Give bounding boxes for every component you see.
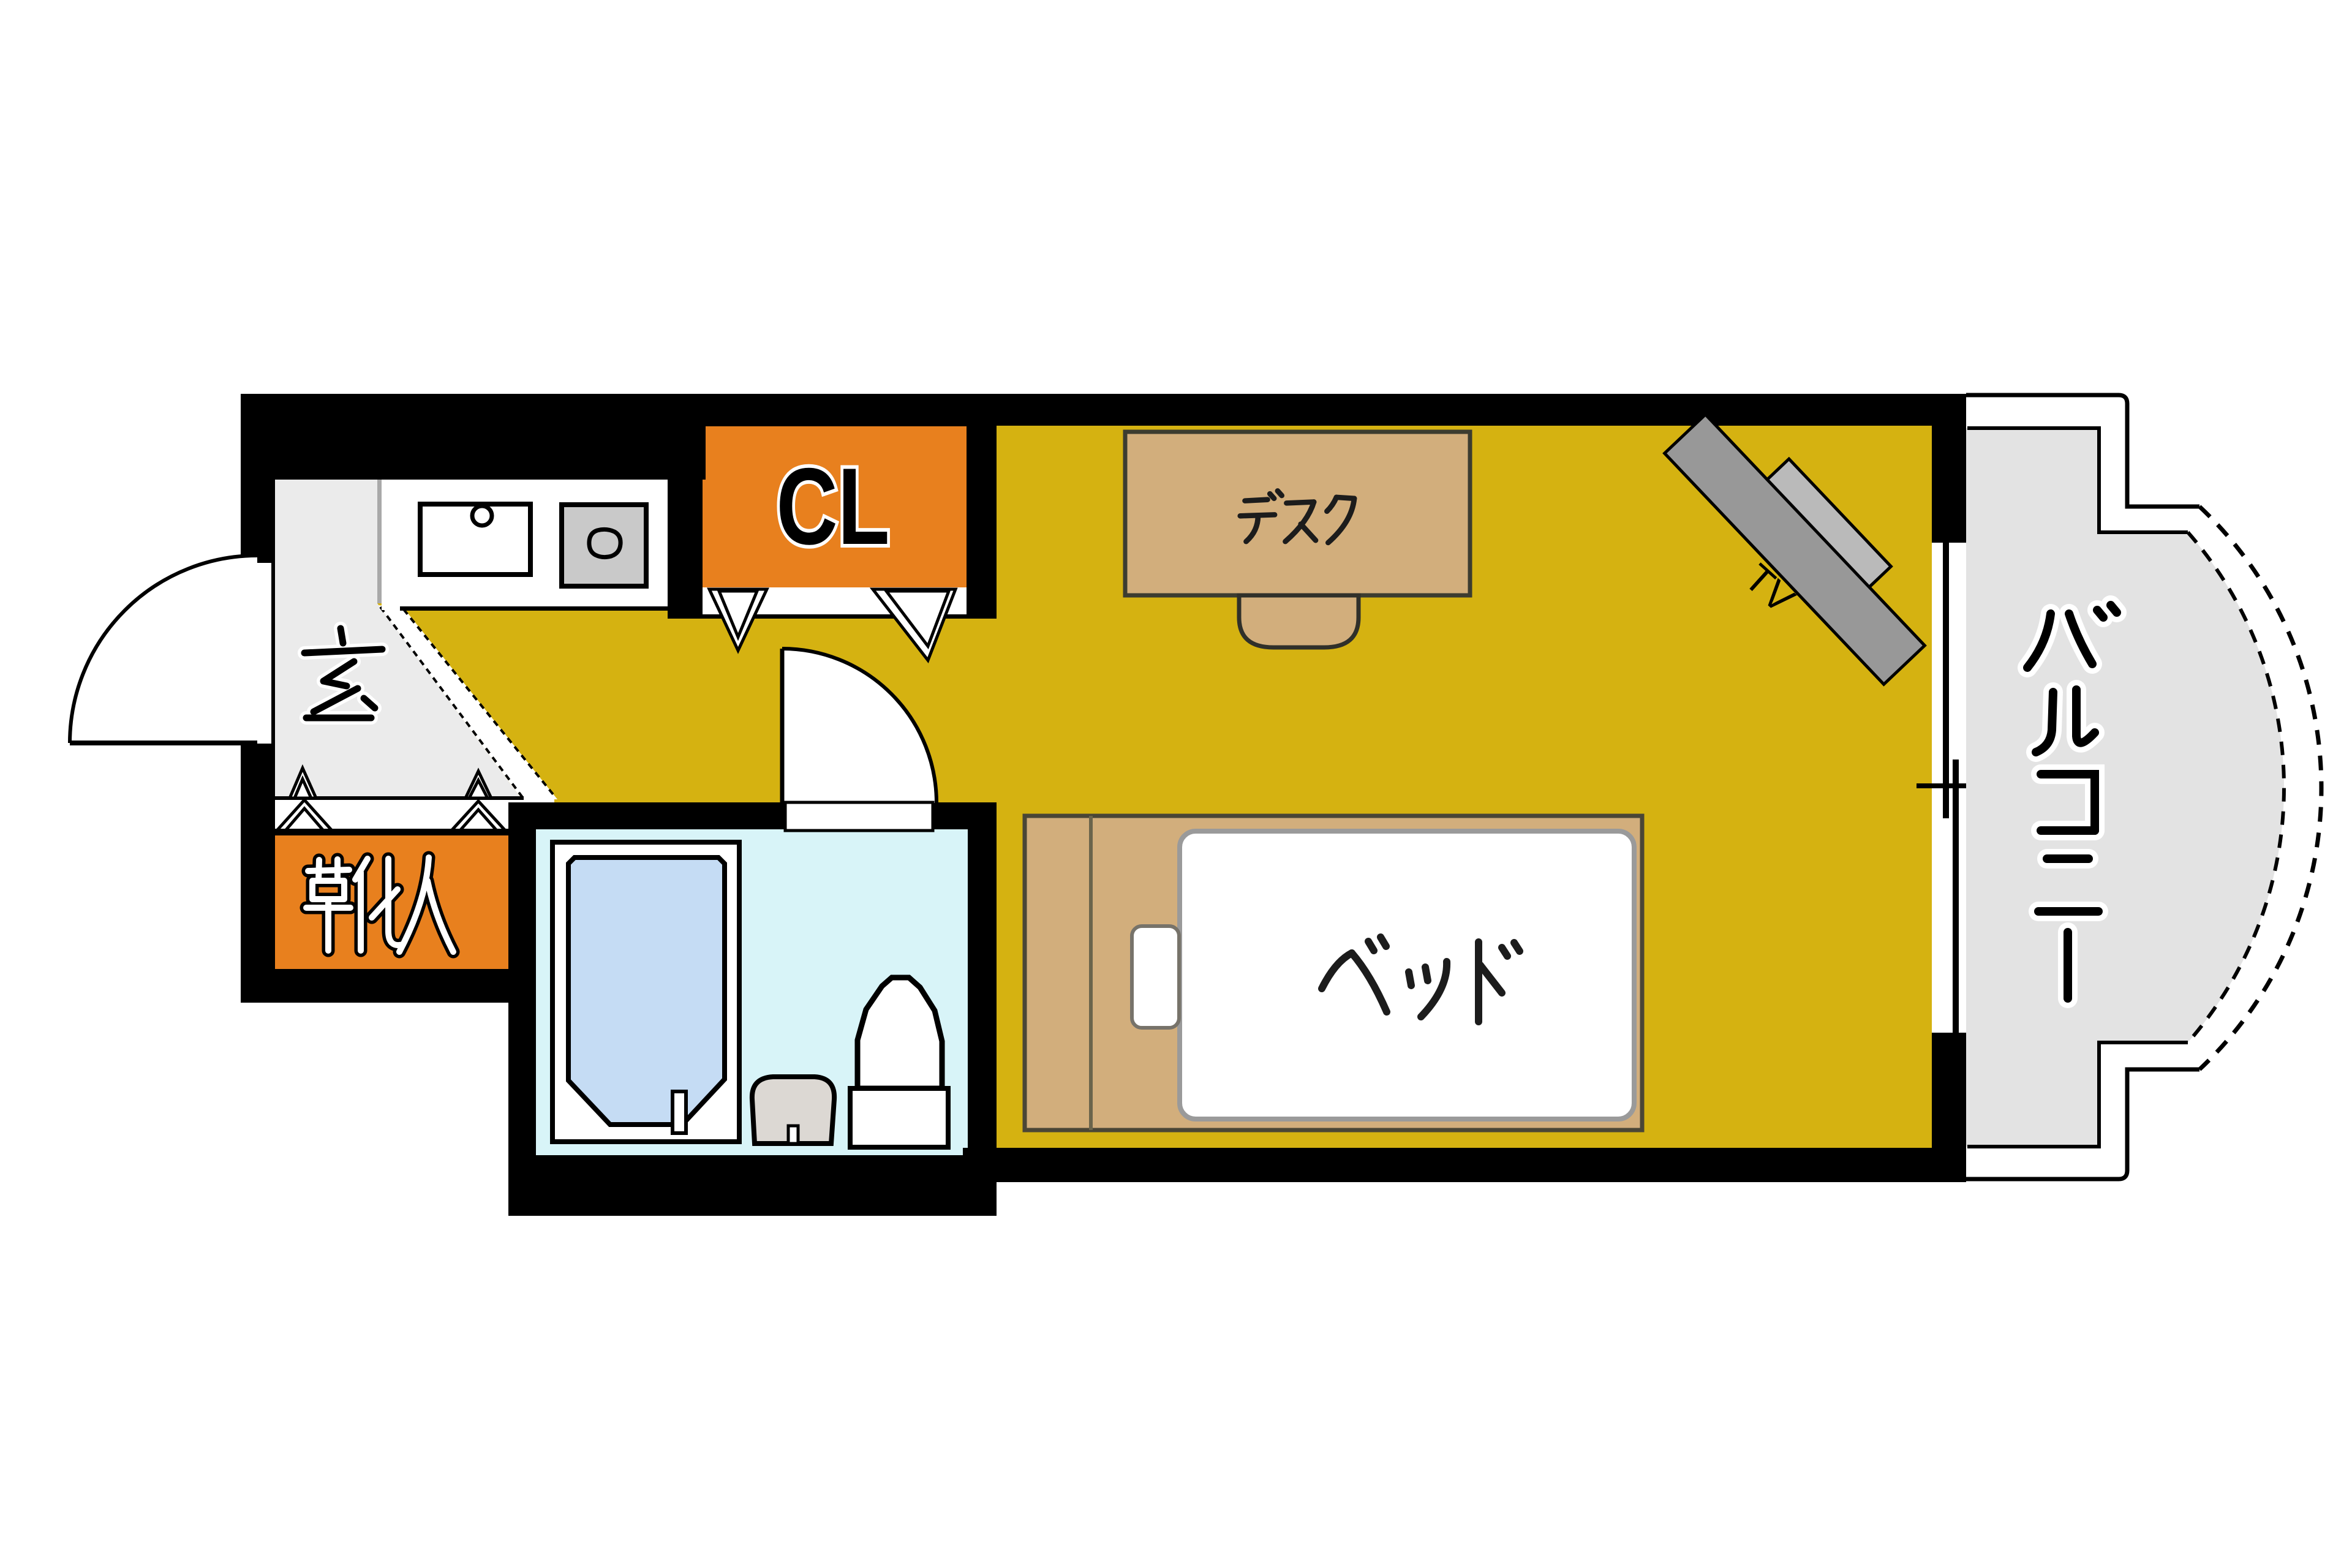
svg-text:CL: CL — [776, 445, 889, 567]
